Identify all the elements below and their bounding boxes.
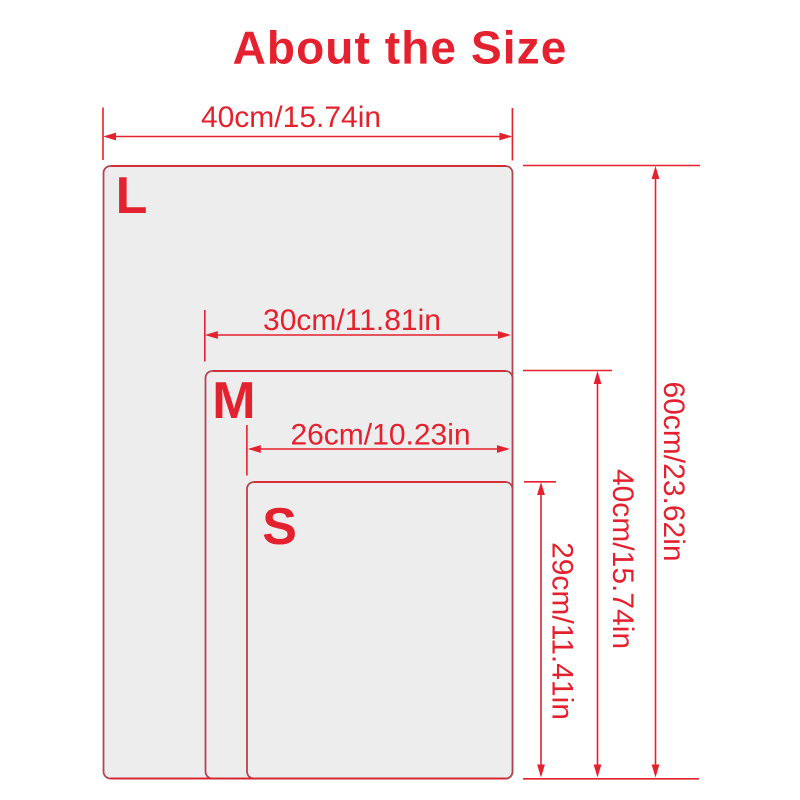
svg-text:About the Size: About the Size [233,22,568,74]
svg-text:S: S [262,498,297,556]
svg-text:40cm/15.74in: 40cm/15.74in [201,101,381,134]
svg-text:L: L [116,167,148,225]
svg-text:30cm/11.81in: 30cm/11.81in [263,304,441,337]
svg-text:60cm/23.62in: 60cm/23.62in [657,381,690,561]
svg-text:40cm/15.74in: 40cm/15.74in [606,469,639,649]
svg-text:29cm/11.41in: 29cm/11.41in [546,542,579,720]
svg-text:26cm/10.23in: 26cm/10.23in [290,419,470,452]
svg-text:M: M [212,372,255,430]
